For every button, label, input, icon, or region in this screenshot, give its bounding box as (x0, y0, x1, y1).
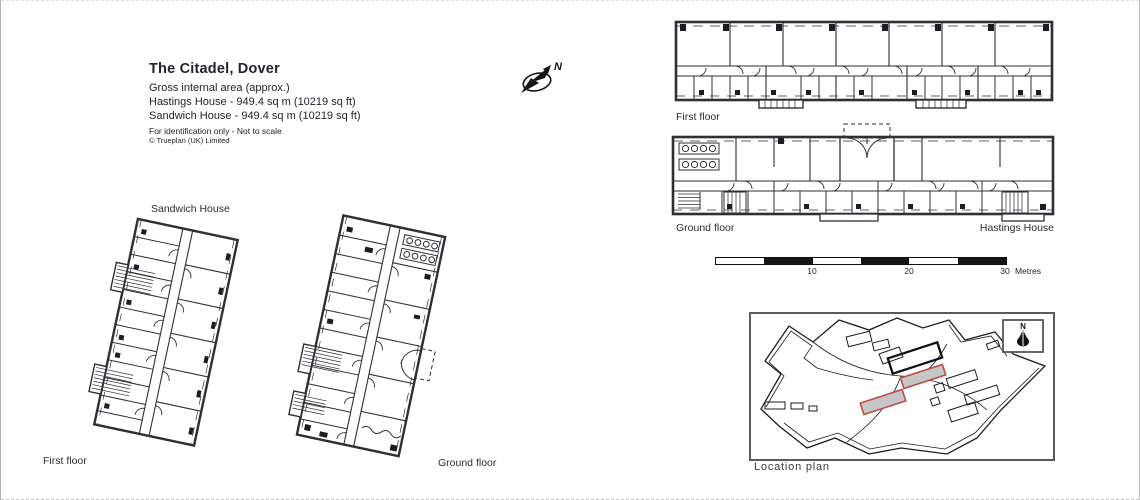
hastings-ground-floor-plan (670, 122, 1056, 224)
entrance (398, 345, 435, 383)
sandwich-house-label: Sandwich House (151, 203, 230, 215)
scale-tick-20: 20 (904, 266, 913, 276)
stair-bays (289, 344, 316, 417)
scale-bar-labels: 10 20 30 Metres (715, 265, 1007, 277)
walls (676, 22, 1052, 100)
fixtures (727, 138, 1046, 210)
highlighted-building-sandwich (860, 389, 906, 414)
scale-tick-30: 30 (1000, 266, 1009, 276)
walls (94, 219, 237, 446)
scale-unit-label: Metres (1015, 266, 1041, 276)
location-plan: N (749, 312, 1055, 461)
disclaimer: For identification only - Not to scale (149, 126, 361, 136)
fixtures (680, 24, 1049, 95)
fixtures (303, 226, 440, 452)
kitchen-appliances (679, 143, 719, 170)
sandwich-first-floor-plan (78, 213, 252, 452)
walls (673, 137, 1053, 214)
north-letter: N (554, 61, 563, 73)
hastings-ground-floor-label: Ground floor (676, 222, 734, 234)
kitchen-appliances (400, 235, 440, 266)
floorplan-page: The Citadel, Dover Gross internal area (… (0, 0, 1140, 500)
hastings-house-label: Hastings House (956, 222, 1054, 234)
location-plan-map: N (751, 314, 1053, 459)
sandwich-ground-floor-label: Ground floor (438, 457, 496, 469)
title-block: The Citadel, Dover Gross internal area (… (149, 61, 361, 146)
break-line (361, 425, 401, 438)
door-arcs (135, 248, 196, 420)
scale-bar-track (715, 257, 1007, 265)
location-north-letter: N (1020, 322, 1026, 331)
copyright: © Trueplan (UK) Limited (149, 137, 361, 146)
hastings-first-floor-plan (673, 16, 1055, 112)
page-title: The Citadel, Dover (149, 61, 361, 78)
door-arcs (337, 247, 403, 444)
scale-tick-10: 10 (807, 266, 816, 276)
subtitle: Gross internal area (approx.) (149, 82, 361, 95)
coat-rack-hatch (678, 192, 700, 210)
sandwich-ground-floor-plan (278, 208, 465, 464)
scale-bar: 10 20 30 Metres (715, 257, 1007, 277)
north-arrow-icon: N (515, 56, 569, 98)
entrance-doors (847, 137, 887, 158)
door-arcs (726, 181, 1018, 191)
area-line-sandwich: Sandwich House - 949.4 sq m (10219 sq ft… (149, 110, 361, 123)
location-plan-label: Location plan (754, 461, 830, 473)
area-line-hastings: Hastings House - 949.4 sq m (10219 sq ft… (149, 96, 361, 109)
location-north-box: N (1003, 320, 1043, 352)
door-arcs (698, 66, 1030, 76)
sandwich-first-floor-label: First floor (43, 455, 87, 467)
